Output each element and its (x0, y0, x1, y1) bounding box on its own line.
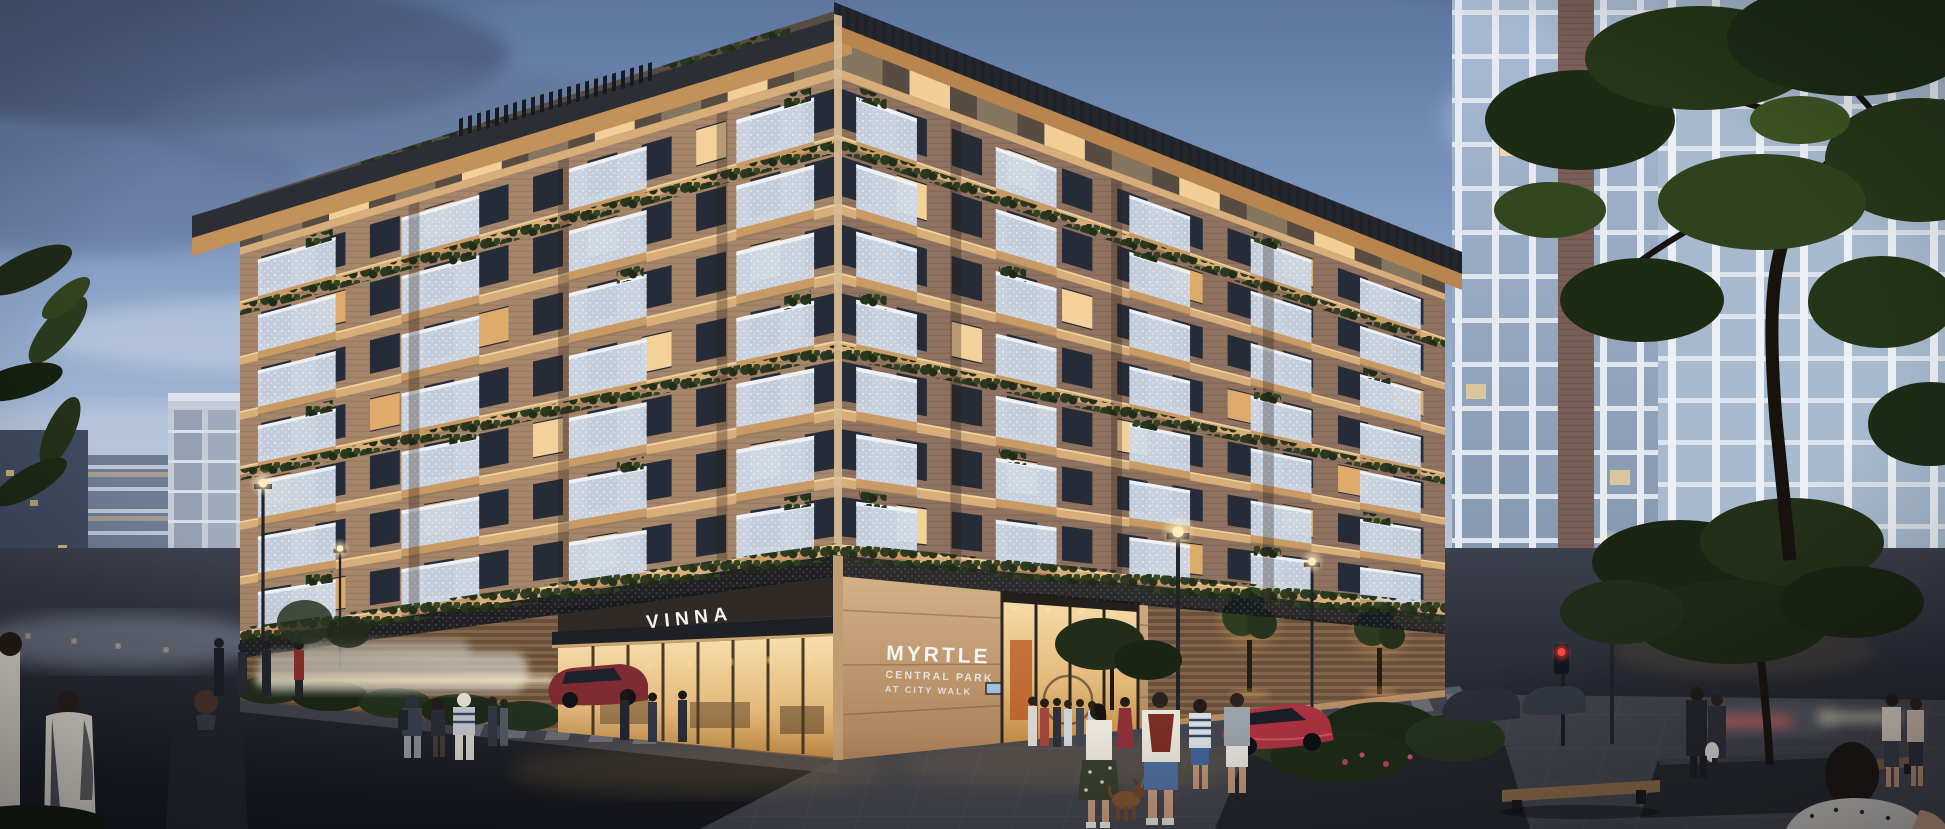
vignette (0, 0, 1945, 829)
architectural-rendering: VINNA MYRTLE CENTRAL PARK AT CITY WALK (0, 0, 1945, 829)
scene-canvas: VINNA MYRTLE CENTRAL PARK AT CITY WALK (0, 0, 1945, 829)
atmosphere (0, 0, 1945, 829)
